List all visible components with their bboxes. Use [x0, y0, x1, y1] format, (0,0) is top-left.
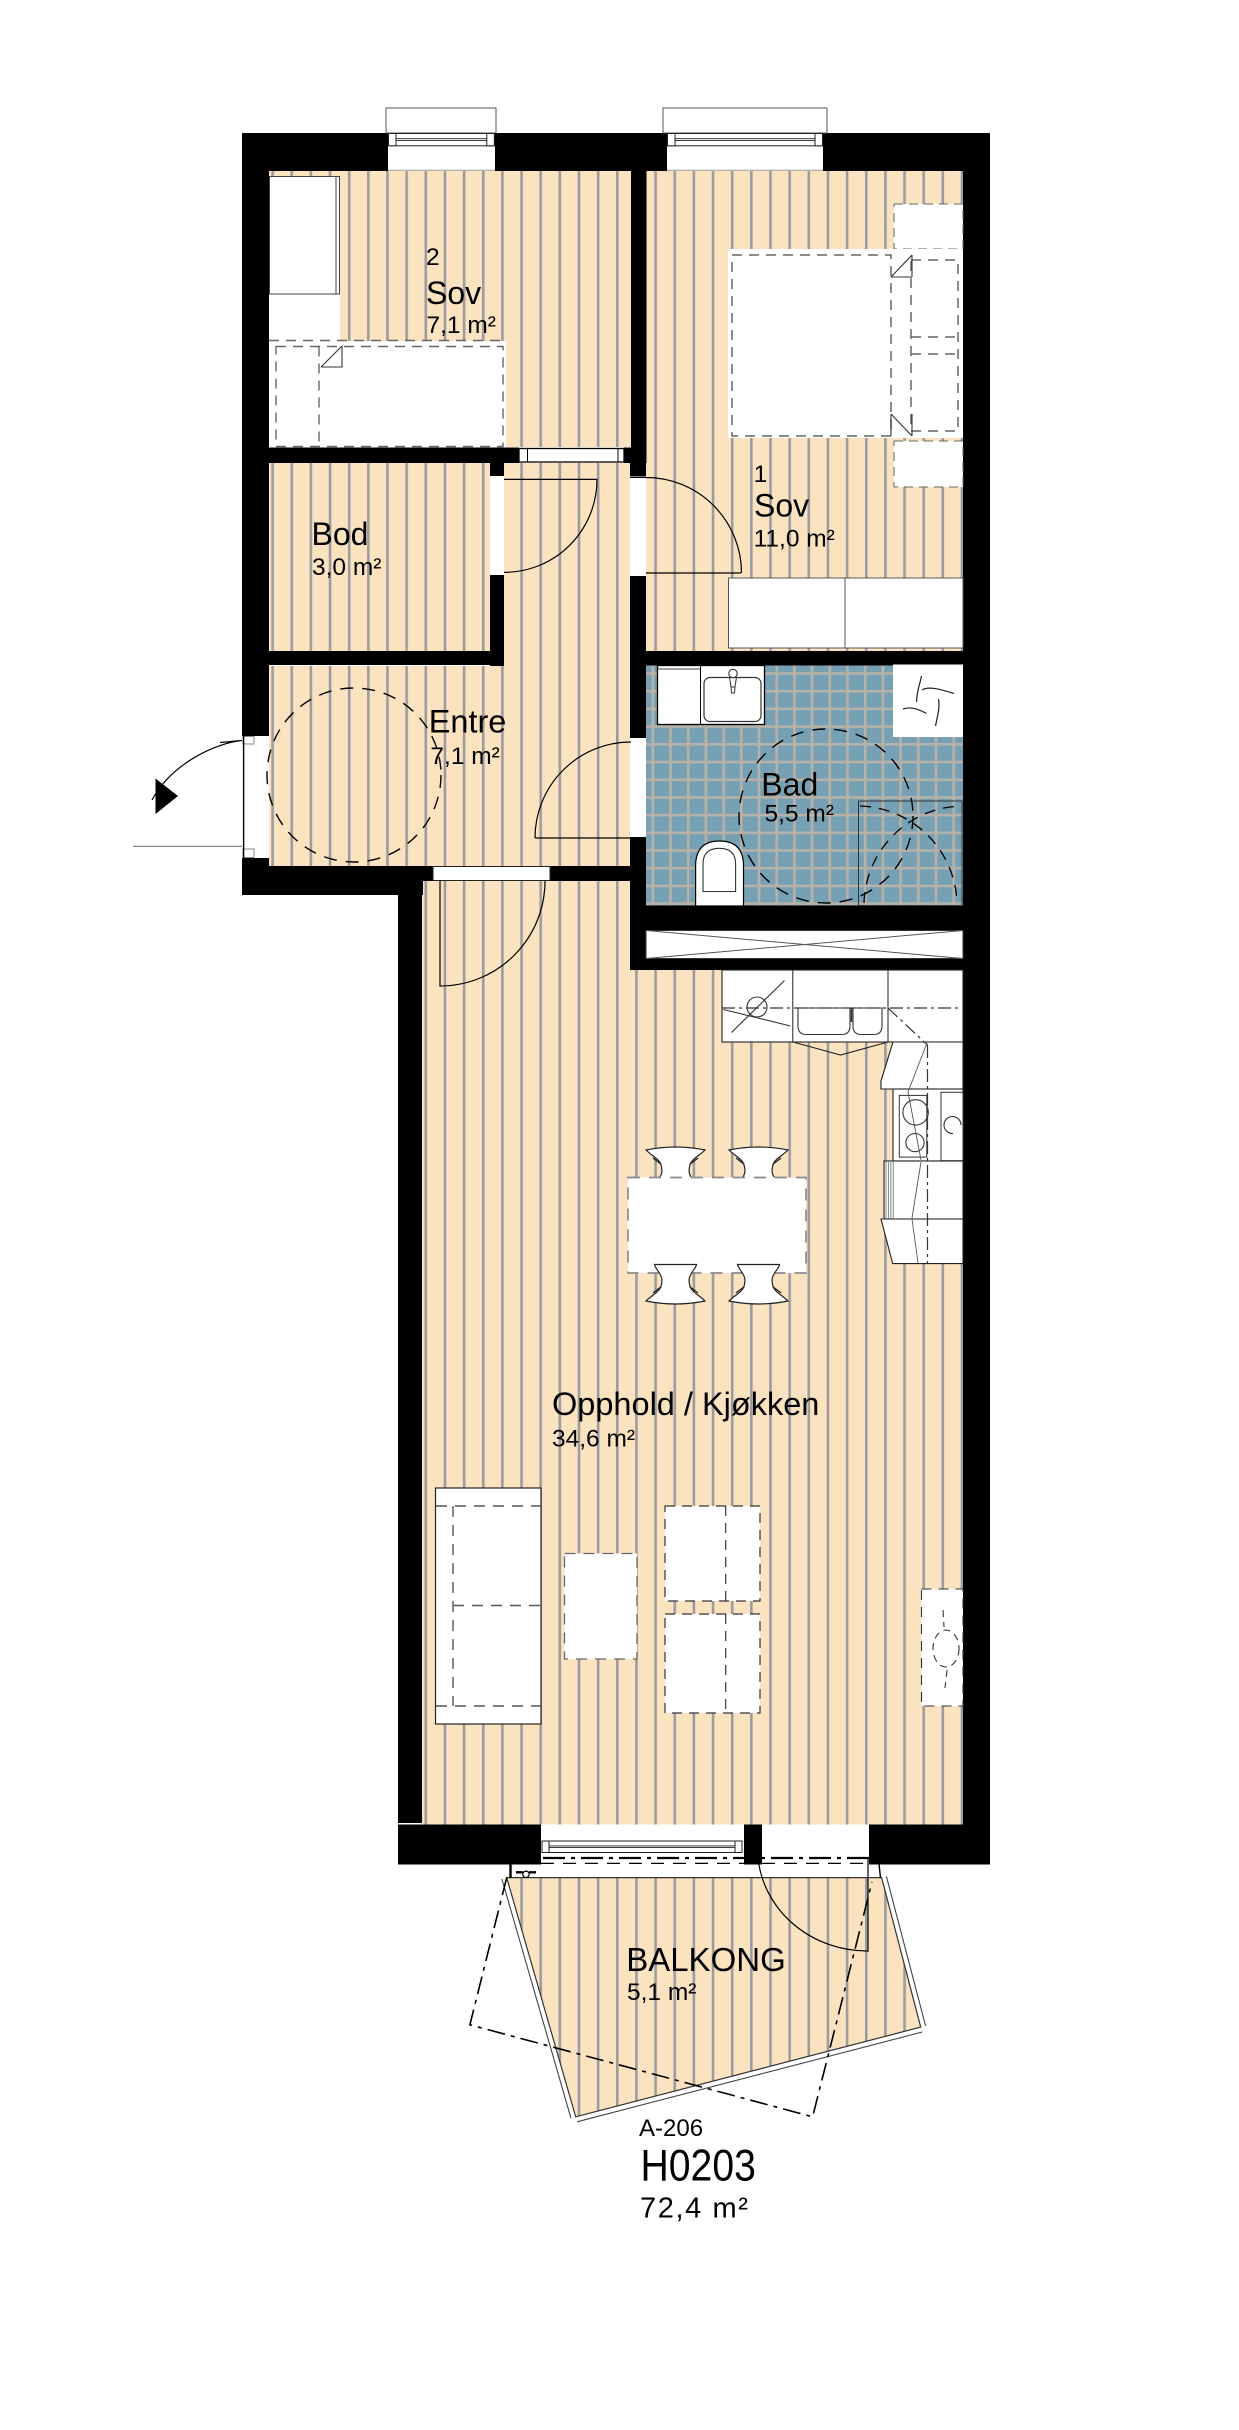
- svg-text:11,0 m²: 11,0 m²: [754, 526, 835, 553]
- svg-text:1: 1: [754, 461, 768, 488]
- svg-text:2: 2: [426, 244, 440, 271]
- svg-text:3,0 m²: 3,0 m²: [312, 554, 381, 581]
- svg-text:Bod: Bod: [312, 516, 369, 552]
- svg-text:7,1 m²: 7,1 m²: [430, 743, 499, 770]
- svg-text:H0203: H0203: [641, 2140, 756, 2190]
- svg-text:34,6 m²: 34,6 m²: [552, 1426, 635, 1453]
- svg-text:Sov: Sov: [754, 488, 809, 524]
- svg-text:Entre: Entre: [429, 704, 507, 740]
- svg-text:5,5 m²: 5,5 m²: [765, 801, 834, 828]
- svg-text:Sov: Sov: [426, 275, 481, 311]
- svg-text:Bad: Bad: [761, 767, 818, 803]
- svg-text:7,1 m²: 7,1 m²: [427, 312, 496, 339]
- svg-text:A-206: A-206: [639, 2115, 703, 2142]
- svg-text:BALKONG: BALKONG: [626, 1941, 786, 1978]
- svg-text:72,4 m²: 72,4 m²: [640, 2193, 750, 2225]
- svg-text:5,1 m²: 5,1 m²: [627, 1979, 696, 2006]
- svg-text:Opphold / Kjøkken: Opphold / Kjøkken: [552, 1386, 819, 1422]
